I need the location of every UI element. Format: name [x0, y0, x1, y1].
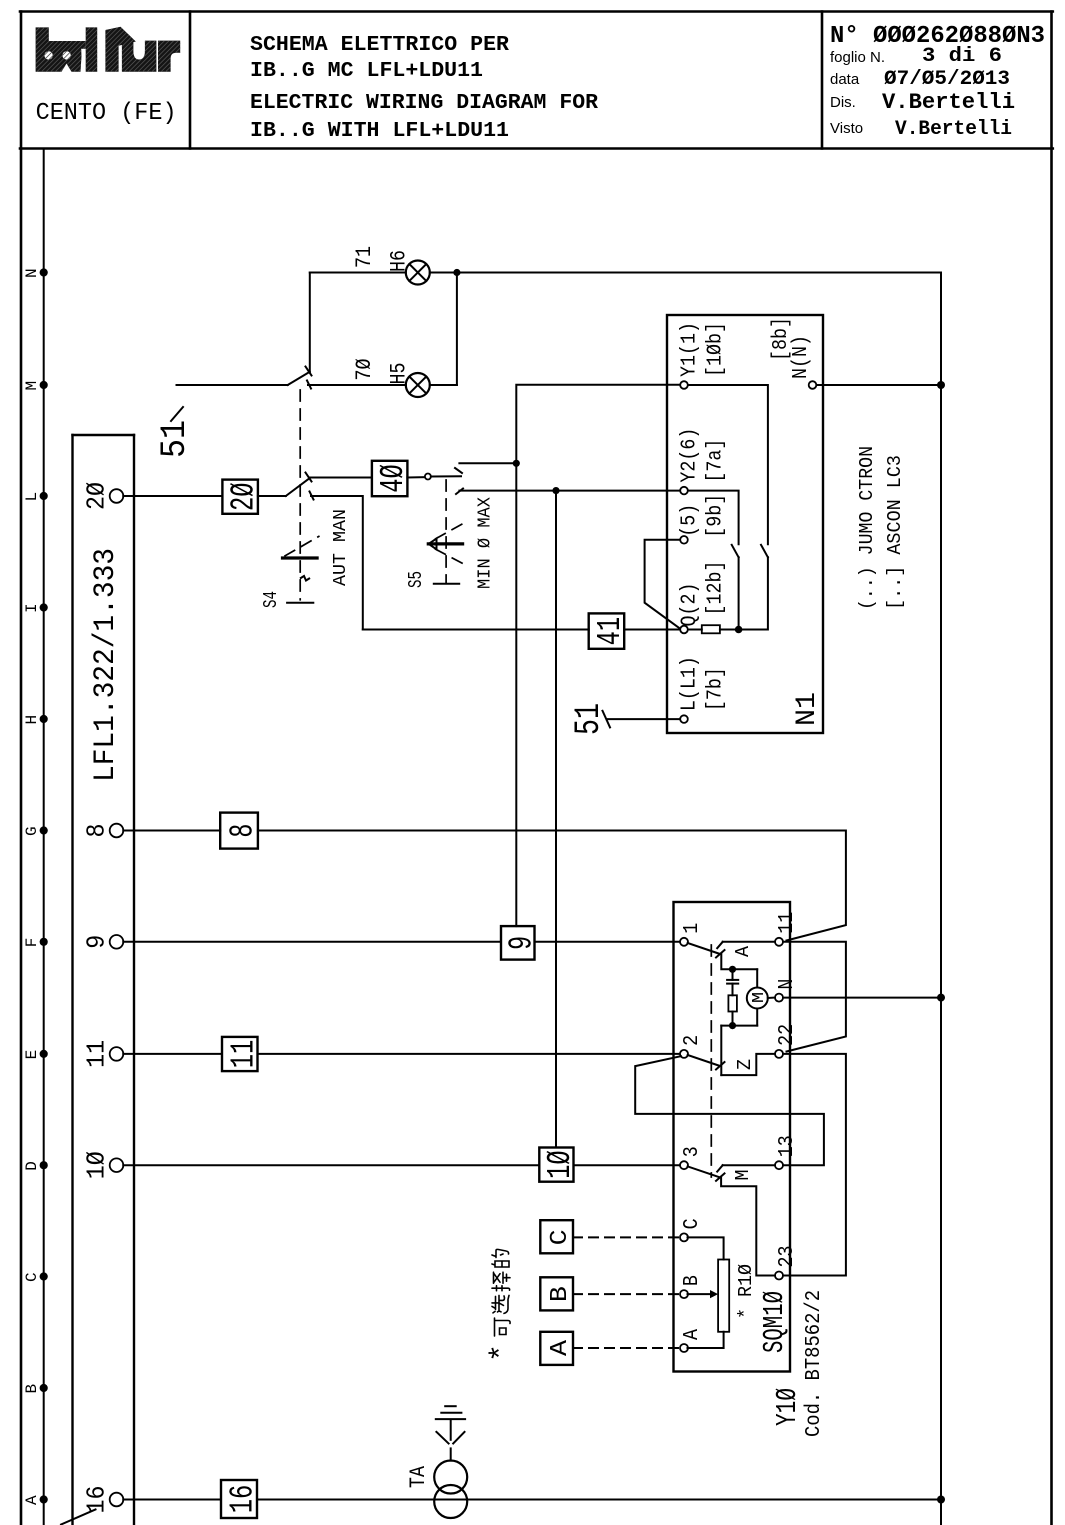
- svg-text:Z: Z: [734, 1059, 756, 1070]
- svg-text:[8b]: [8b]: [770, 317, 793, 361]
- svg-text:A: A: [547, 1339, 574, 1356]
- svg-text:Y1Ø: Y1Ø: [771, 1388, 804, 1426]
- svg-text:(..) JUMO CTRON: (..) JUMO CTRON: [856, 446, 878, 610]
- svg-text:foglio N.: foglio N.: [830, 49, 885, 66]
- svg-text:B: B: [547, 1286, 574, 1302]
- svg-text:MIN Ø MAX: MIN Ø MAX: [476, 497, 496, 589]
- svg-text:H5: H5: [387, 363, 412, 385]
- svg-text:22: 22: [776, 1024, 799, 1046]
- svg-text:N: N: [776, 979, 799, 990]
- svg-text:Ø7/Ø5/2Ø13: Ø7/Ø5/2Ø13: [884, 68, 1010, 91]
- svg-text:Cod. BT8562/2: Cod. BT8562/2: [803, 1290, 826, 1437]
- svg-text:41: 41: [592, 617, 629, 646]
- svg-text:C: C: [681, 1218, 704, 1229]
- svg-text:L: L: [23, 492, 41, 502]
- svg-text:E: E: [23, 1050, 41, 1060]
- svg-text:16: 16: [225, 1485, 262, 1514]
- svg-text:[9b]: [9b]: [705, 494, 728, 538]
- svg-text:[12b]: [12b]: [705, 561, 728, 616]
- svg-text:M: M: [23, 381, 41, 391]
- svg-text:51: 51: [569, 703, 609, 735]
- svg-text:M: M: [732, 1170, 754, 1181]
- svg-text:11: 11: [82, 1040, 112, 1068]
- svg-text:3: 3: [681, 1146, 704, 1157]
- svg-text:N(N): N(N): [790, 335, 813, 379]
- svg-text:[..] ASCON LC3: [..] ASCON LC3: [884, 455, 906, 610]
- svg-text:V.Bertelli: V.Bertelli: [895, 118, 1012, 141]
- svg-text:23: 23: [776, 1246, 799, 1268]
- svg-text:Dis.: Dis.: [830, 94, 856, 111]
- svg-text:M: M: [750, 992, 769, 1003]
- svg-text:SCHEMA ELETTRICO PER: SCHEMA ELETTRICO PER: [250, 34, 509, 57]
- svg-text:7Ø: 7Ø: [352, 359, 377, 381]
- svg-text:AUT MAN: AUT MAN: [331, 509, 351, 586]
- svg-text:9: 9: [503, 936, 540, 950]
- svg-text:* R1Ø: * R1Ø: [735, 1264, 757, 1319]
- svg-text:3 di 6: 3 di 6: [922, 45, 1002, 68]
- svg-text:Y2(6): Y2(6): [679, 428, 702, 483]
- svg-text:Visto: Visto: [830, 120, 863, 137]
- svg-text:S4: S4: [260, 591, 282, 608]
- svg-text:1: 1: [681, 923, 704, 934]
- svg-text:A: A: [681, 1329, 704, 1340]
- svg-text:LFL1.322/1.333: LFL1.322/1.333: [89, 548, 123, 782]
- svg-text:A: A: [23, 1495, 41, 1505]
- svg-text:2Ø: 2Ø: [82, 482, 112, 510]
- svg-text:SQM1Ø: SQM1Ø: [758, 1291, 791, 1353]
- svg-text:(5): (5): [679, 504, 702, 537]
- svg-text:B: B: [681, 1275, 704, 1286]
- svg-text:8: 8: [225, 824, 262, 838]
- svg-text:F: F: [23, 938, 41, 948]
- svg-text:G: G: [23, 826, 41, 836]
- svg-text:2: 2: [681, 1035, 704, 1046]
- svg-text:L(L1): L(L1): [679, 656, 702, 711]
- svg-text:*: *: [486, 1344, 520, 1362]
- svg-text:9: 9: [82, 935, 112, 949]
- svg-text:I: I: [23, 603, 41, 613]
- svg-text:Q(2): Q(2): [679, 583, 702, 627]
- svg-text:data: data: [830, 71, 860, 88]
- svg-text:A: A: [732, 945, 754, 957]
- svg-text:51: 51: [155, 420, 195, 458]
- svg-text:16: 16: [82, 1486, 112, 1514]
- svg-text:ELECTRIC WIRING DIAGRAM FOR: ELECTRIC WIRING DIAGRAM FOR: [250, 92, 598, 115]
- svg-text:C: C: [23, 1272, 41, 1282]
- svg-text:Y1(1): Y1(1): [679, 322, 702, 377]
- svg-text:N1: N1: [792, 692, 823, 726]
- svg-text:[7a]: [7a]: [705, 439, 728, 483]
- svg-text:[1Øb]: [1Øb]: [705, 322, 728, 377]
- svg-text:11: 11: [776, 912, 799, 934]
- svg-text:C: C: [547, 1229, 574, 1245]
- svg-text:71: 71: [352, 246, 377, 268]
- svg-text:1Ø: 1Ø: [82, 1151, 112, 1179]
- svg-text:13: 13: [776, 1135, 799, 1157]
- svg-text:8: 8: [82, 824, 112, 838]
- svg-text:B: B: [23, 1384, 41, 1394]
- svg-text:N: N: [23, 268, 41, 278]
- svg-text:D: D: [23, 1161, 41, 1171]
- svg-text:V.Bertelli: V.Bertelli: [882, 90, 1015, 115]
- svg-text:TA: TA: [406, 1465, 431, 1488]
- svg-text:IB..G WITH LFL+LDU11: IB..G WITH LFL+LDU11: [250, 120, 509, 143]
- svg-text:[7b]: [7b]: [705, 667, 728, 711]
- svg-text:CENTO (FE): CENTO (FE): [36, 100, 177, 127]
- svg-text:IB..G MC LFL+LDU11: IB..G MC LFL+LDU11: [250, 60, 483, 83]
- svg-text:H6: H6: [387, 250, 412, 272]
- svg-text:H: H: [23, 715, 41, 725]
- svg-text:S5: S5: [405, 571, 427, 588]
